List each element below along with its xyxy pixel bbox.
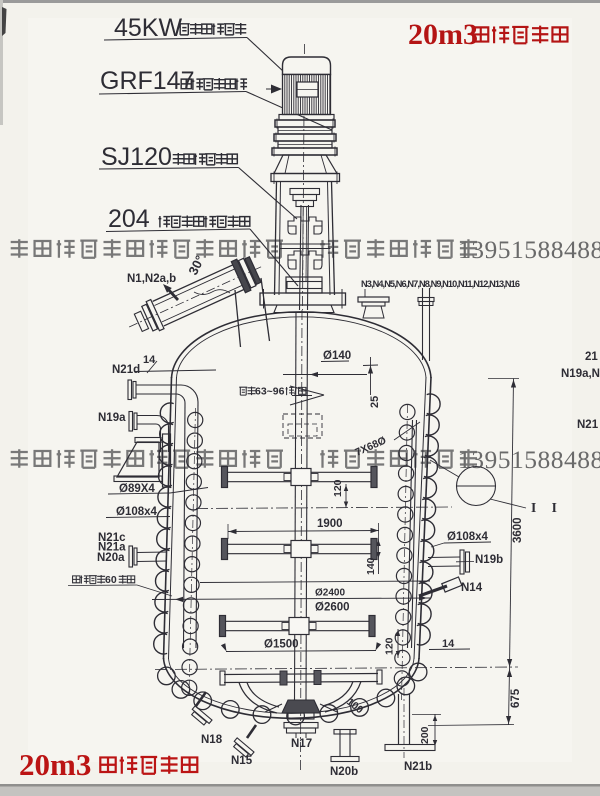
svg-text:SJ120: SJ120: [101, 143, 172, 171]
svg-text:N17: N17: [291, 738, 312, 750]
svg-text:N21d: N21d: [112, 364, 140, 376]
svg-text:N1,N2a,b: N1,N2a,b: [127, 273, 176, 285]
svg-text:N19a,N: N19a,N: [561, 368, 600, 380]
svg-text:N19a: N19a: [98, 412, 126, 424]
svg-text:Ø140: Ø140: [323, 350, 351, 362]
svg-text:1900: 1900: [317, 518, 343, 530]
svg-text:675: 675: [510, 688, 522, 708]
svg-text:N20b: N20b: [330, 766, 358, 778]
svg-text:I I: I I: [531, 500, 563, 515]
svg-text:25: 25: [369, 396, 381, 408]
svg-text:Ø2600: Ø2600: [315, 602, 350, 614]
svg-text:N15: N15: [231, 755, 253, 767]
svg-text:14: 14: [442, 638, 455, 650]
svg-text:20m3: 20m3: [19, 747, 91, 782]
svg-text:Ø2400: Ø2400: [315, 588, 345, 599]
svg-text:GRF147: GRF147: [100, 67, 194, 95]
svg-text:20m3: 20m3: [408, 18, 478, 51]
svg-text:13951588488: 13951588488: [458, 235, 600, 264]
svg-text:N3,N4,N5,N6,N7,N8,N9,N10,N11,N: N3,N4,N5,N6,N7,N8,N9,N10,N11,N12,N13,N16: [361, 279, 520, 289]
svg-text:200: 200: [419, 726, 431, 744]
svg-text:N18: N18: [201, 734, 223, 746]
svg-text:N14: N14: [461, 582, 483, 594]
svg-text:3600: 3600: [512, 517, 524, 543]
svg-text:Ø108x4: Ø108x4: [116, 506, 158, 518]
svg-text:N21b: N21b: [404, 761, 432, 773]
svg-text:Ø1500: Ø1500: [264, 639, 299, 651]
svg-text:N21: N21: [577, 419, 599, 431]
svg-text:N20a: N20a: [97, 552, 125, 564]
svg-text:N19b: N19b: [475, 554, 503, 566]
svg-text:13951588488: 13951588488: [458, 445, 600, 474]
svg-text:21: 21: [585, 351, 598, 363]
svg-text:120: 120: [384, 637, 396, 655]
svg-text:60: 60: [105, 574, 117, 586]
svg-text:Ø108x4: Ø108x4: [447, 531, 489, 543]
svg-text:140: 140: [365, 557, 377, 575]
svg-text:45KW: 45KW: [114, 14, 182, 42]
svg-text:63~96: 63~96: [255, 386, 285, 398]
svg-text:204: 204: [108, 205, 150, 233]
